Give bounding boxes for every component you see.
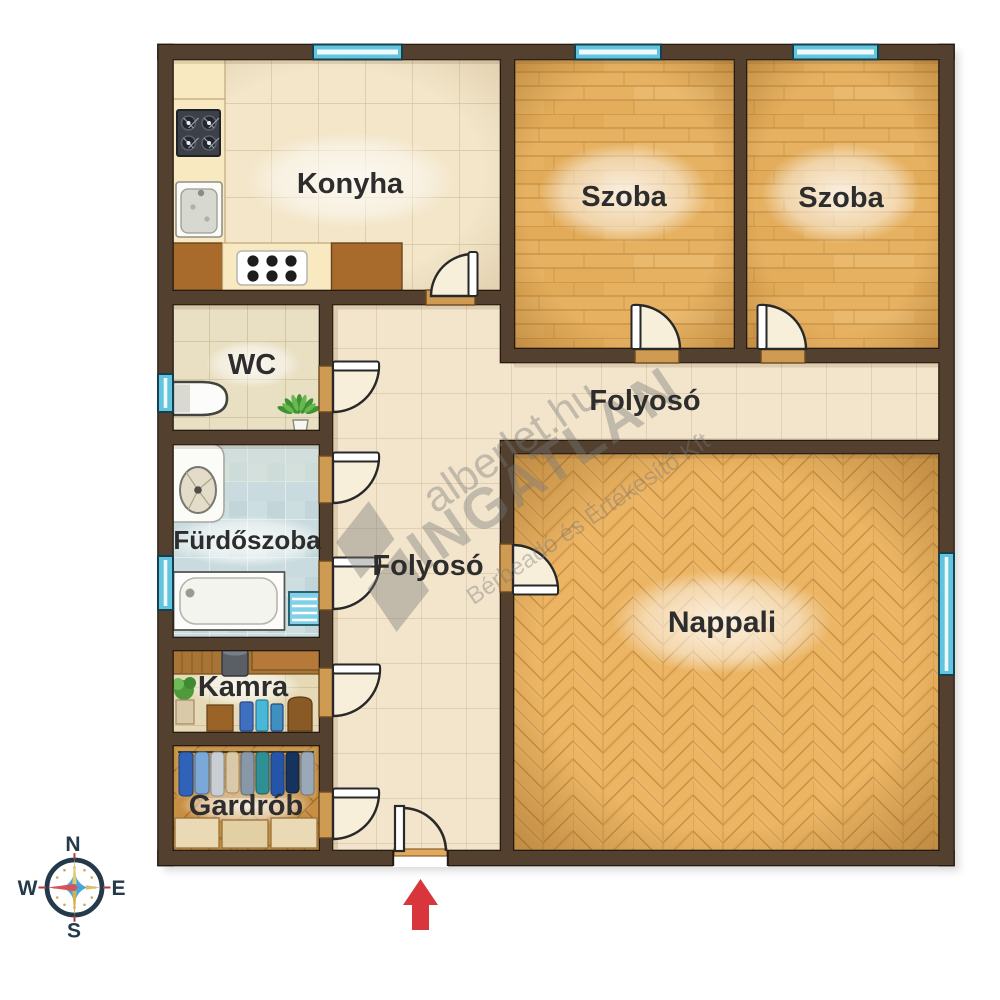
svg-text:Szoba: Szoba (581, 181, 667, 213)
svg-text:Fürdőszoba: Fürdőszoba (173, 525, 321, 555)
svg-text:Gardrób: Gardrób (189, 790, 303, 822)
svg-text:W: W (18, 877, 38, 900)
svg-text:Folyosó: Folyosó (372, 550, 483, 582)
svg-text:Kamra: Kamra (198, 671, 289, 703)
svg-text:Szoba: Szoba (798, 182, 884, 214)
svg-text:Nappali: Nappali (668, 606, 776, 639)
svg-text:N: N (65, 833, 80, 856)
svg-text:Folyosó: Folyosó (589, 385, 700, 417)
svg-text:E: E (111, 877, 125, 900)
svg-text:Konyha: Konyha (297, 168, 404, 200)
svg-text:S: S (67, 920, 81, 943)
svg-text:WC: WC (228, 349, 276, 381)
